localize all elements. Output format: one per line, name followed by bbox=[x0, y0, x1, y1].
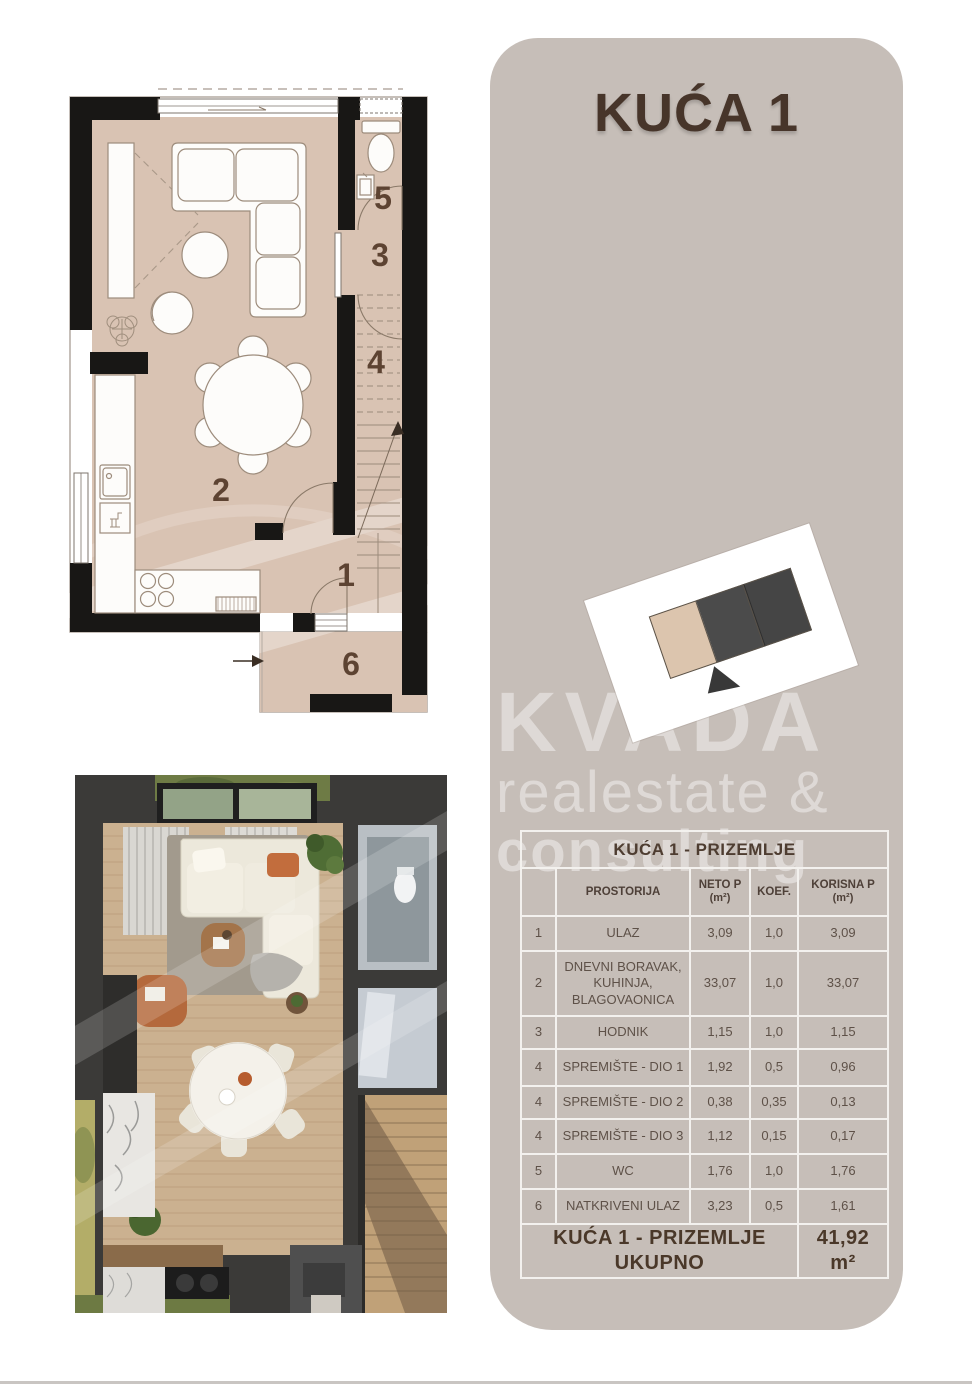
col-neto: NETO P(m²) bbox=[690, 868, 750, 916]
stairs-3d bbox=[358, 1095, 447, 1313]
table-row: 1ULAZ3,091,03,09 bbox=[521, 916, 888, 951]
page-footer-line bbox=[0, 1381, 972, 1384]
coffee-table bbox=[182, 232, 228, 278]
wardrobe bbox=[108, 143, 134, 298]
direction-arrow-icon bbox=[708, 666, 744, 700]
cooktop-3d bbox=[165, 1267, 229, 1299]
col-korisna: KORISNA P(m²) bbox=[798, 868, 888, 916]
room-number-2: 2 bbox=[212, 472, 230, 508]
table-title-row: KUĆA 1 - PRIZEMLJE bbox=[521, 831, 888, 868]
total-value: 41,92 m² bbox=[798, 1224, 888, 1278]
col-koef: KOEF. bbox=[750, 868, 798, 916]
col-num bbox=[521, 868, 556, 916]
armchair bbox=[151, 292, 193, 334]
room-number-5: 5 bbox=[374, 180, 392, 216]
room-number-1: 1 bbox=[337, 557, 355, 593]
room-number-6: 6 bbox=[342, 646, 360, 682]
table-row: 4SPREMIŠTE - DIO 31,120,150,17 bbox=[521, 1119, 888, 1154]
table-row: 5WC1,761,01,76 bbox=[521, 1154, 888, 1189]
area-table: KUĆA 1 - PRIZEMLJE PROSTORIJA NETO P(m²)… bbox=[520, 830, 889, 1279]
table-row: 4SPREMIŠTE - DIO 20,380,350,13 bbox=[521, 1086, 888, 1119]
table-row: 2DNEVNI BORAVAK, KUHINJA, BLAGOVAONICA33… bbox=[521, 951, 888, 1016]
table-title: KUĆA 1 - PRIZEMLJE bbox=[521, 831, 888, 868]
col-room: PROSTORIJA bbox=[556, 868, 690, 916]
table-row: 4SPREMIŠTE - DIO 11,920,50,96 bbox=[521, 1049, 888, 1086]
table-row: 3HODNIK1,151,01,15 bbox=[521, 1016, 888, 1049]
entry-3d bbox=[290, 1245, 362, 1313]
table-total-row: KUĆA 1 - PRIZEMLJE UKUPNO 41,92 m² bbox=[521, 1224, 888, 1278]
watermark-line2: realestate & bbox=[496, 764, 830, 822]
orange-pillow bbox=[267, 853, 299, 877]
sink-icon bbox=[100, 465, 130, 499]
table-row: 6NATKRIVENI ULAZ3,230,51,61 bbox=[521, 1189, 888, 1224]
info-panel: KUĆA 1 KVADA realestate & consulting KUĆ… bbox=[490, 38, 903, 1330]
glass-doors bbox=[157, 783, 317, 825]
wc-sink-icon bbox=[357, 173, 374, 199]
table-header-row: PROSTORIJA NETO P(m²) KOEF. KORISNA P(m²… bbox=[521, 868, 888, 916]
floorplan-2d: 5 3 4 2 1 6 bbox=[58, 83, 443, 733]
room-number-3: 3 bbox=[371, 237, 389, 273]
site-plan-units bbox=[649, 568, 812, 679]
page-title: KUĆA 1 bbox=[490, 38, 903, 144]
render-3d-topview bbox=[75, 775, 447, 1313]
room-number-4: 4 bbox=[367, 344, 385, 380]
total-label: KUĆA 1 - PRIZEMLJE UKUPNO bbox=[521, 1224, 798, 1278]
